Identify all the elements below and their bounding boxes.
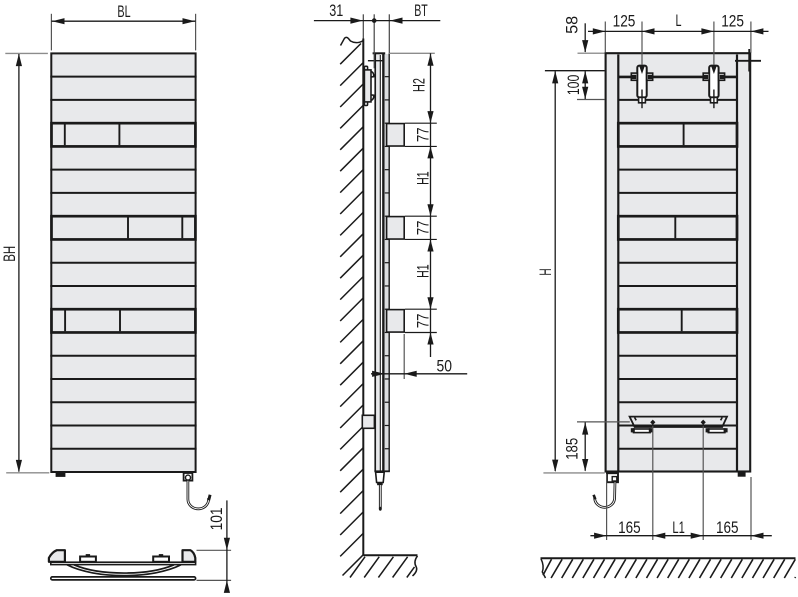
svg-text:100: 100 <box>564 75 583 96</box>
svg-text:165: 165 <box>716 518 739 537</box>
svg-text:77: 77 <box>414 314 433 329</box>
svg-text:H1: H1 <box>414 264 433 278</box>
svg-text:125: 125 <box>721 12 744 31</box>
svg-text:31: 31 <box>329 1 343 20</box>
svg-text:H: H <box>536 268 555 275</box>
svg-text:BT: BT <box>414 1 428 20</box>
svg-text:BL: BL <box>117 2 130 21</box>
svg-text:BH: BH <box>0 246 19 262</box>
svg-text:L: L <box>676 11 682 30</box>
svg-text:185: 185 <box>562 438 581 460</box>
svg-text:L1: L1 <box>672 518 685 537</box>
svg-text:H2: H2 <box>410 78 429 92</box>
svg-text:125: 125 <box>613 12 636 31</box>
svg-text:H1: H1 <box>414 171 433 185</box>
svg-text:50: 50 <box>437 357 453 376</box>
svg-text:58: 58 <box>563 16 582 34</box>
svg-text:77: 77 <box>414 128 433 143</box>
svg-text:77: 77 <box>414 221 433 236</box>
svg-text:101: 101 <box>207 507 226 530</box>
svg-text:165: 165 <box>618 518 641 537</box>
